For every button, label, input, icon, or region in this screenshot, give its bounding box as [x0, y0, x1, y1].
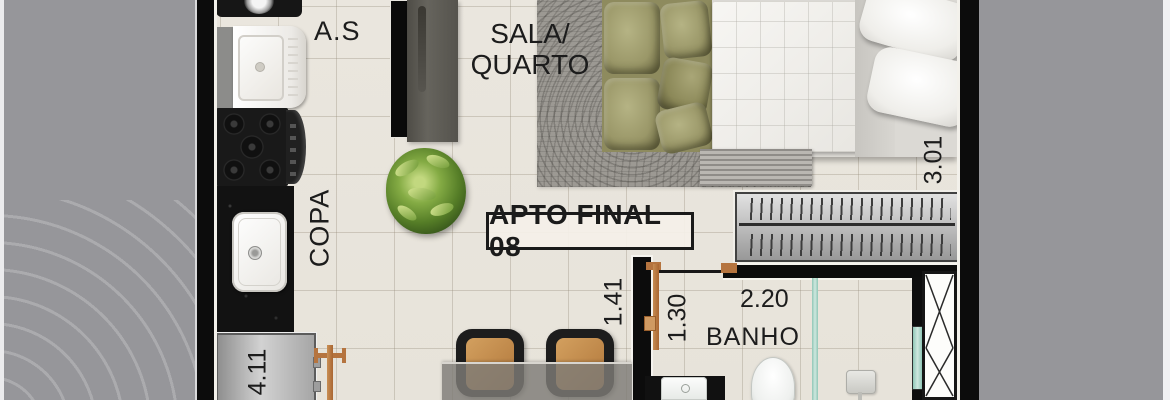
hanger-row: [743, 234, 951, 256]
wall-right: [957, 0, 979, 400]
door-frame: [721, 263, 737, 273]
label-quarto: QUARTO: [450, 49, 610, 80]
stove: [216, 108, 288, 186]
foot-bench: [700, 149, 812, 186]
door-frame: [342, 348, 346, 363]
door-frame: [314, 348, 318, 363]
bed-duvet: [712, 2, 860, 152]
label-living-bedroom: SALA/ QUARTO: [450, 18, 610, 80]
washing-machine: [216, 0, 302, 17]
floor-plan: A.S SALA/ QUARTO COPA 4.11 1.41 1.30 3.0…: [0, 0, 1170, 400]
bathroom-door: [653, 264, 659, 350]
plant: [386, 148, 466, 234]
label-pantry: COPA: [305, 189, 336, 268]
shaft-x-icon: [925, 274, 954, 397]
closet-rail: [739, 223, 955, 226]
tank-ridges: [288, 38, 298, 96]
tv-panel-groove: [418, 6, 426, 92]
sofa-cushion: [604, 2, 660, 74]
shower-head: [846, 370, 876, 394]
shower-stem: [858, 392, 862, 400]
sofa: [602, 0, 712, 152]
dimension-1-41: 1.41: [600, 278, 629, 327]
laundry-backsplash: [216, 27, 233, 108]
sofa-back-pillow: [659, 0, 713, 60]
hanger-row: [743, 198, 951, 220]
faucet-icon: [248, 246, 262, 260]
dining-table: [442, 362, 632, 400]
label-service-area: A.S: [314, 16, 361, 47]
dimension-2-20: 2.20: [740, 285, 789, 314]
faucet-icon: [681, 384, 690, 393]
shower-glass-panel: [812, 278, 818, 400]
fridge-hinge: [313, 381, 321, 392]
label-sala: SALA/: [450, 18, 610, 49]
apartment-title: APTO FINAL 08: [489, 199, 691, 263]
entry-door: [327, 345, 333, 400]
sofa-back-pillow: [653, 100, 714, 155]
dimension-1-30: 1.30: [664, 294, 693, 343]
stove-knobs: [290, 120, 296, 176]
ventilation-shaft: [922, 271, 957, 400]
apartment-title-box: APTO FINAL 08: [486, 212, 694, 250]
laundry-tank: [233, 26, 306, 108]
shower-glass-panel: [913, 327, 922, 389]
bathroom-vanity: [645, 376, 725, 400]
kitchen-sink: [232, 212, 287, 292]
label-bathroom: BANHO: [706, 323, 800, 352]
wall-left: [195, 0, 217, 400]
tank-drain-icon: [255, 62, 265, 72]
sofa-cushion: [604, 78, 660, 150]
image-right-border: [1163, 0, 1170, 400]
bathroom-door-opening: [655, 270, 725, 273]
door-handle-icon: [644, 316, 656, 331]
wardrobe: [735, 192, 959, 262]
dimension-3-01: 3.01: [920, 136, 949, 185]
tv: [390, 0, 408, 138]
bed: [712, 0, 957, 157]
washer-drum-icon: [244, 0, 274, 14]
image-left-border: [0, 0, 4, 400]
dimension-4-11: 4.11: [244, 349, 273, 396]
